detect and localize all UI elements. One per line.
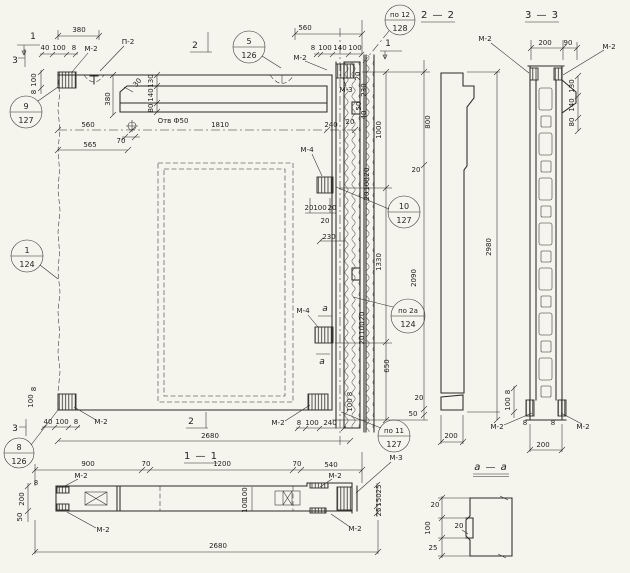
dim-100-br-v: 100 bbox=[346, 398, 354, 411]
label-m3-top: М-3 bbox=[339, 85, 352, 94]
callout-1-num: 1 bbox=[24, 246, 29, 255]
dim-100-ax1: 100 bbox=[363, 177, 371, 190]
label-m2-bottom-right: М-2 bbox=[271, 418, 284, 427]
dim-50-tr: 50 bbox=[355, 102, 363, 111]
section-2-2-profile bbox=[441, 73, 474, 393]
label-m2-s11-tr: М-2 bbox=[328, 471, 341, 480]
dim-8-bl: 8 bbox=[74, 418, 78, 426]
dim-8: 8 bbox=[72, 44, 76, 52]
dim-20-ax2: 20 bbox=[363, 192, 371, 201]
panel-left-break-edge bbox=[58, 72, 60, 410]
dim-100-tr2: 100 bbox=[348, 44, 361, 52]
p2-leader bbox=[100, 46, 124, 71]
dim-150-s11: 150 bbox=[375, 493, 383, 506]
left-v-dim-line bbox=[38, 69, 44, 94]
m4-2-leader bbox=[308, 315, 318, 327]
label-m2-s33-bl: М-2 bbox=[490, 422, 503, 431]
m4-1-leader bbox=[312, 154, 322, 176]
cut3-bottom-lines bbox=[19, 419, 26, 436]
dim-20-chain1: 20 bbox=[412, 166, 421, 174]
m2-s33-left-leader bbox=[491, 43, 529, 73]
section-3-3: 3 — 3 200 90 М-2 130 140 80 8 100 М-2 М-… bbox=[467, 10, 616, 453]
dim-560-top-right: 560 bbox=[298, 24, 311, 32]
dim-20-ax3: 20 bbox=[358, 312, 366, 321]
callout-8-sheet: 126 bbox=[11, 457, 26, 466]
section-2-2-foot bbox=[441, 395, 463, 410]
dim-650: 650 bbox=[383, 359, 391, 372]
callout-1-124: 1 124 bbox=[11, 240, 58, 279]
dim-140-tr: 140 bbox=[333, 44, 346, 52]
s11-left-plate-bottom bbox=[57, 504, 69, 510]
dim-30-leader bbox=[124, 87, 133, 92]
callout-10-num: 10 bbox=[399, 202, 409, 211]
label-m2-s33-right: М-2 bbox=[602, 42, 615, 51]
cut-mark-3-bottom: 3 bbox=[12, 424, 18, 434]
dim-8-s33-bl: 8 bbox=[523, 419, 527, 427]
dim-540: 540 bbox=[324, 461, 337, 469]
label-p2: П-2 bbox=[122, 37, 135, 46]
dim-100-bl: 100 bbox=[55, 418, 68, 426]
dim-40-tr: 40 bbox=[360, 111, 368, 120]
m2-s33-br-leader bbox=[561, 413, 582, 424]
callout-po12-num: по 12 bbox=[390, 11, 410, 19]
dim-2980: 2980 bbox=[485, 238, 493, 256]
mullion-edge-lines bbox=[332, 62, 336, 428]
dim-140-s33: 140 bbox=[568, 98, 576, 111]
dim-20-chain2: 20 bbox=[415, 394, 424, 402]
dim-130-s33: 130 bbox=[568, 79, 576, 92]
dim-40-100-8-line bbox=[39, 52, 78, 57]
dim-40: 40 bbox=[41, 44, 50, 52]
dim-8-s33-br: 8 bbox=[551, 419, 555, 427]
label-m4-2: М-4 bbox=[296, 306, 310, 315]
section-a-a-underline bbox=[473, 474, 509, 477]
dim-380-top: 380 bbox=[72, 26, 85, 34]
s11-divider bbox=[117, 486, 120, 511]
section-2-2-title: 2 — 2 bbox=[421, 10, 455, 21]
cut-mark-2-top: 2 bbox=[192, 41, 198, 51]
saa-break-marks bbox=[498, 496, 508, 558]
dim-200-s33-bot: 200 bbox=[536, 441, 549, 449]
section-3-3-title: 3 — 3 bbox=[525, 10, 559, 21]
cut-mark-3-top-left: 3 bbox=[12, 56, 18, 66]
dim-100-bl-v: 100 bbox=[27, 394, 35, 407]
anchor-plate-bottom-right bbox=[308, 394, 328, 410]
dim-20-p1a: 20 bbox=[305, 204, 314, 212]
dim-20-saa-notch: 20 bbox=[455, 522, 464, 530]
callout-9-num: 9 bbox=[23, 102, 28, 111]
dim-8-left-v: 8 bbox=[30, 90, 38, 94]
dim-100-s33-v: 100 bbox=[504, 397, 512, 410]
s11-body bbox=[56, 483, 352, 511]
opening-outer bbox=[158, 163, 293, 402]
section-2-2: 2 — 2 200 М-2 bbox=[421, 10, 529, 445]
dim-2680-main: 2680 bbox=[201, 432, 219, 440]
cut1-mark-lines bbox=[17, 45, 40, 55]
s33-top-plate-right bbox=[554, 68, 562, 80]
label-m3-s11: М-3 bbox=[389, 453, 402, 462]
section-a-a: а — а 20 100 25 20 bbox=[424, 462, 512, 559]
s33-top-plate-left bbox=[530, 68, 538, 80]
callout-po12-sheet: 128 bbox=[392, 24, 407, 33]
dim-25-s11b: 25 bbox=[375, 508, 383, 517]
section-a-a-title: а — а bbox=[474, 462, 508, 473]
dim-100-left-v: 100 bbox=[30, 73, 38, 86]
dim-80-s33: 80 bbox=[568, 118, 576, 127]
br-dim-line bbox=[295, 426, 346, 431]
dim-8-s11: 8 bbox=[34, 479, 38, 487]
dim-20-tr2: 20 bbox=[346, 118, 355, 126]
callout-8-num: 8 bbox=[16, 443, 21, 452]
label-m4-1: М-4 bbox=[300, 145, 314, 154]
dim-1330: 1330 bbox=[375, 253, 383, 271]
callout-po11-sheet: 127 bbox=[386, 440, 401, 449]
m4-plate-2 bbox=[315, 327, 333, 343]
p2-anchor-symbol bbox=[90, 75, 98, 84]
m2-leader-top-right bbox=[305, 61, 327, 70]
anchor-plate-bottom-left bbox=[58, 394, 76, 410]
callout-1-sheet: 124 bbox=[19, 260, 34, 269]
dim-20-saa-top: 20 bbox=[431, 501, 440, 509]
s11-right-strip-bottom bbox=[310, 508, 326, 513]
dim-565: 565 bbox=[83, 141, 96, 149]
dim-200-s22-line bbox=[438, 415, 466, 445]
dim-100-tr: 100 bbox=[318, 44, 331, 52]
m2-s33-bl-leader bbox=[504, 413, 532, 425]
dim-50-chain: 50 bbox=[409, 410, 418, 418]
dim-30-beam: 30 bbox=[132, 77, 144, 89]
dim-8-br-v: 8 bbox=[346, 392, 354, 396]
opening-inner bbox=[164, 169, 285, 396]
drawing-canvas: а а 1 3 380 40 100 8 М-2 П-2 100 8 130 1… bbox=[0, 0, 630, 573]
m3-s11-leader bbox=[356, 462, 391, 493]
dim-900: 900 bbox=[81, 460, 94, 468]
dim-1000: 1000 bbox=[375, 121, 383, 139]
callout-po2a-sheet: 124 bbox=[400, 320, 415, 329]
hole-note: Отв Ф50 bbox=[158, 117, 189, 125]
dim-20-ax1: 20 bbox=[363, 168, 371, 177]
cut-mark-1-top-right: 1 bbox=[385, 39, 391, 49]
dim-20-tr: 20 bbox=[354, 72, 362, 81]
outer-chain-line bbox=[421, 60, 427, 420]
s33-hollow-cores bbox=[539, 88, 552, 397]
dim-2980-line bbox=[467, 69, 500, 423]
dim-2680-s11: 2680 bbox=[209, 542, 227, 550]
dim-2680-s11-line bbox=[32, 520, 381, 555]
callout-po11-num: по 11 bbox=[384, 427, 404, 435]
callout-5-sheet: 126 bbox=[241, 51, 256, 60]
dim-100-ax2: 100 bbox=[358, 321, 366, 334]
dim-8-s33-v: 8 bbox=[504, 390, 512, 394]
m2-s33-right-leader bbox=[563, 50, 604, 75]
dim-8-100-140-100-line bbox=[314, 52, 364, 57]
mullion-top-plate bbox=[336, 64, 354, 78]
dim-100: 100 bbox=[52, 44, 65, 52]
s11-embed-box-1 bbox=[85, 492, 107, 505]
dim-50-s11: 50 bbox=[16, 513, 24, 522]
s11-left-plate-top bbox=[57, 487, 69, 493]
dim-100-p1: 100 bbox=[313, 204, 326, 212]
dim-800: 800 bbox=[424, 115, 432, 128]
dim-100-s11b: 100 bbox=[241, 499, 249, 512]
s11-end-lines bbox=[352, 483, 357, 513]
saa-notch-leader bbox=[462, 530, 468, 534]
dim-100-saa: 100 bbox=[424, 521, 432, 534]
label-m2-top-left: М-2 bbox=[84, 44, 97, 53]
dim-2090: 2090 bbox=[410, 269, 418, 287]
dim-8-bl-v: 8 bbox=[30, 387, 38, 391]
dim-20-p1c: 20 bbox=[321, 217, 330, 225]
callout-9-sheet: 127 bbox=[18, 116, 33, 125]
label-m2-bottom-left: М-2 bbox=[94, 417, 107, 426]
callout-po12-128: по 12 128 bbox=[363, 5, 415, 63]
dim-560: 560 bbox=[81, 121, 94, 129]
section-3-3-body bbox=[526, 66, 566, 420]
dim-100-s11a: 100 bbox=[241, 487, 249, 500]
dim-230-tr: 230 bbox=[360, 83, 368, 96]
label-m2-top-right: М-2 bbox=[293, 53, 306, 62]
dim-1810: 1810 bbox=[211, 121, 229, 129]
panel-drawing: а а 1 3 380 40 100 8 М-2 П-2 100 8 130 1… bbox=[0, 0, 630, 573]
cut-mark-2-bottom: 2 bbox=[188, 417, 194, 427]
m4-plate-1 bbox=[317, 177, 333, 193]
mullion-band-texture bbox=[344, 62, 360, 428]
dim-230-p1: 230 bbox=[322, 233, 335, 241]
dim-100-br: 100 bbox=[305, 419, 318, 427]
dim-70-s11b: 70 bbox=[293, 460, 302, 468]
s11-end-cap bbox=[337, 487, 352, 510]
dim-8-br: 8 bbox=[297, 419, 301, 427]
dim-70-s11a: 70 bbox=[142, 460, 151, 468]
dim-240-beam: 240 bbox=[324, 121, 337, 129]
dim-380-v: 380 bbox=[104, 92, 112, 105]
section-1-1: 1 — 1 900 70 1200 70 540 М-2 М-2 М-3 8 2… bbox=[16, 451, 403, 555]
label-m2-s33-left: М-2 bbox=[478, 34, 491, 43]
callout-10-sheet: 127 bbox=[396, 216, 411, 225]
dim-200-s22: 200 bbox=[444, 432, 457, 440]
dim-200-s11: 200 bbox=[18, 492, 26, 505]
dim-20-p1b: 20 bbox=[328, 204, 337, 212]
s11-opening-edges bbox=[160, 486, 293, 511]
callout-5-126: 5 126 bbox=[233, 31, 281, 68]
cut-a-label-1: а bbox=[322, 304, 328, 314]
dim-140-beam: 140 bbox=[147, 88, 155, 101]
m2-s11-bl-leader bbox=[67, 512, 96, 528]
label-m2-s11-br: М-2 bbox=[348, 524, 361, 533]
label-m2-s11-bl: М-2 bbox=[96, 525, 109, 534]
saa-notch-lip bbox=[466, 518, 473, 538]
dim-1200: 1200 bbox=[213, 460, 231, 468]
dim-200-s33-top: 200 bbox=[538, 39, 551, 47]
label-m2-s33-br: М-2 bbox=[576, 422, 589, 431]
s11-embed-box-2 bbox=[275, 491, 300, 505]
label-m2-s11-tl: М-2 bbox=[74, 471, 87, 480]
cut1-tr-lines bbox=[380, 51, 402, 59]
cut-mark-1-top-left: 1 bbox=[30, 32, 36, 42]
dim-130-beam: 130 bbox=[147, 74, 155, 87]
callout-5-num: 5 bbox=[246, 37, 251, 46]
anchor-plate-top-left bbox=[58, 72, 76, 88]
dim-8-tr: 8 bbox=[311, 44, 315, 52]
m2-s11-br-leader bbox=[331, 514, 350, 527]
dim-80-beam: 80 bbox=[147, 104, 155, 113]
dim-25-saa: 25 bbox=[429, 544, 438, 552]
cut-a-label-2: а bbox=[319, 357, 325, 367]
callout-po2a-num: по 2а bbox=[398, 307, 418, 315]
